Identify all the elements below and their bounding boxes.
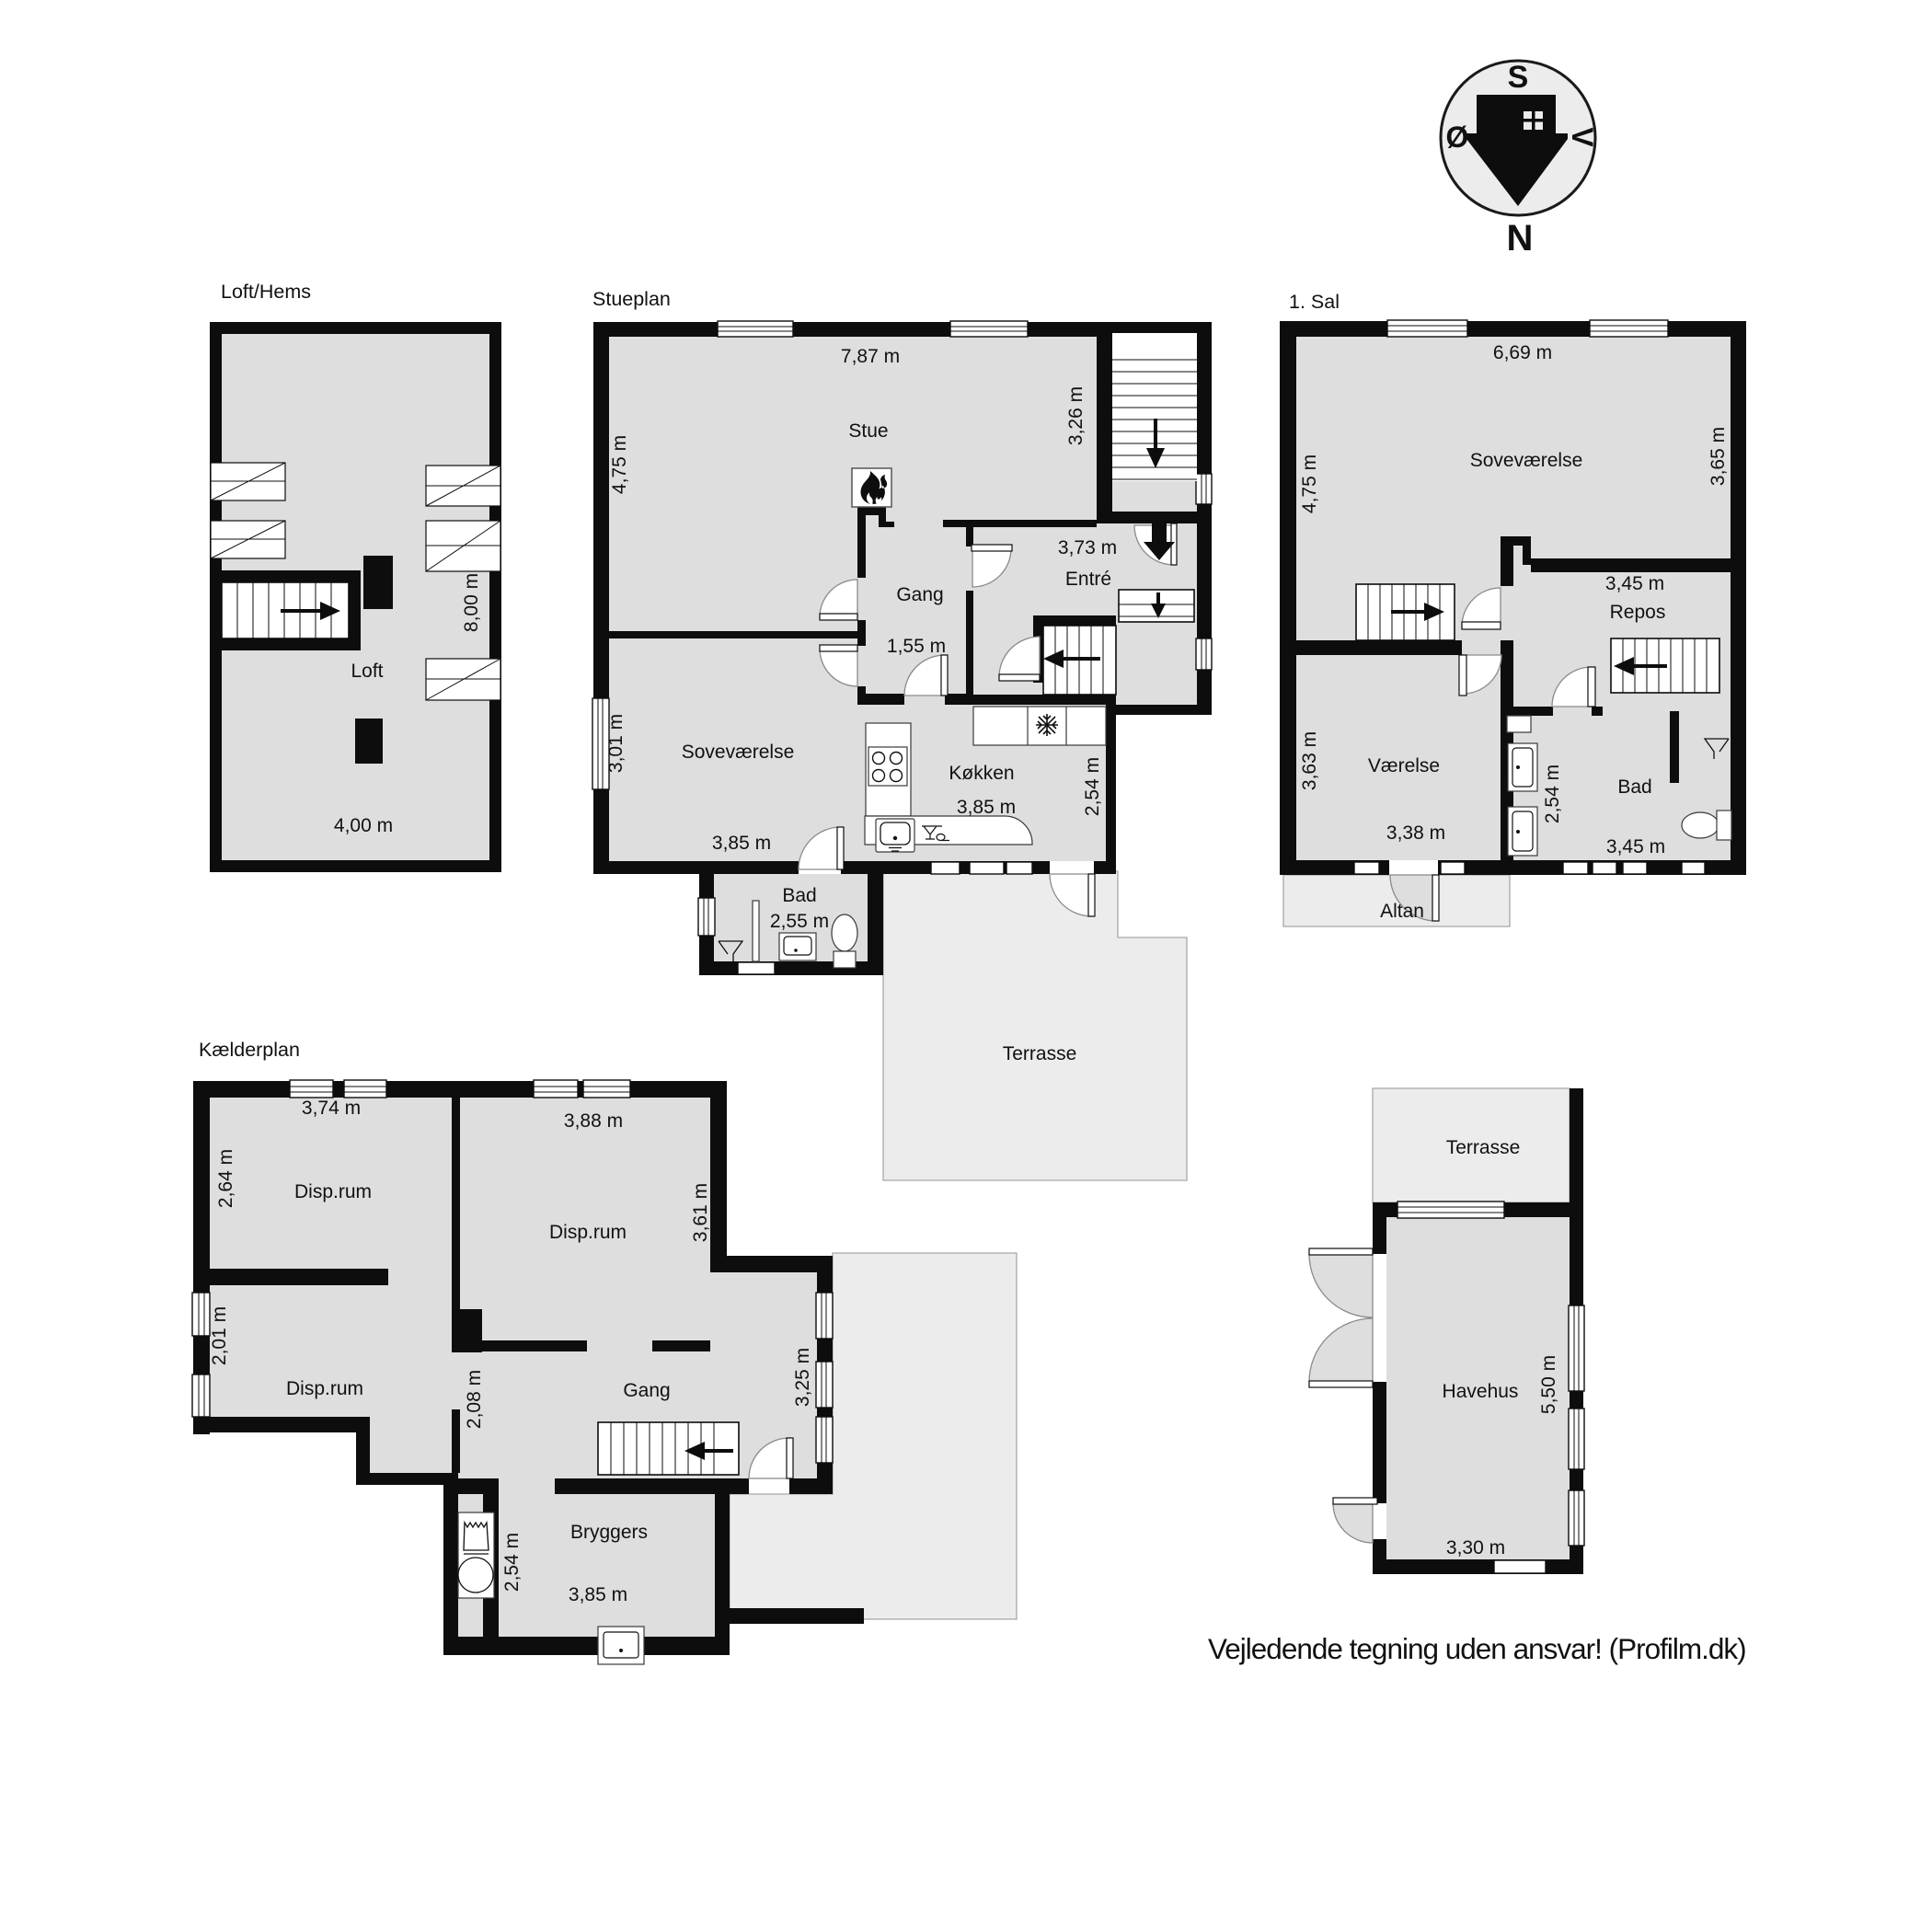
svg-text:N: N	[1507, 218, 1534, 259]
svg-text:Gang: Gang	[896, 584, 943, 605]
svg-text:Altan: Altan	[1380, 901, 1424, 922]
svg-text:Loft: Loft	[351, 661, 383, 682]
svg-text:Ø: Ø	[1446, 121, 1469, 154]
svg-text:3,38 m: 3,38 m	[1386, 822, 1445, 844]
svg-text:Loft/Hems: Loft/Hems	[221, 281, 311, 303]
svg-text:4,75 m: 4,75 m	[1299, 454, 1320, 513]
svg-text:1,55 m: 1,55 m	[887, 636, 946, 657]
svg-text:Bad: Bad	[782, 885, 816, 906]
svg-text:3,30 m: 3,30 m	[1446, 1537, 1505, 1558]
svg-text:4,00 m: 4,00 m	[334, 815, 393, 836]
svg-text:Kælderplan: Kælderplan	[199, 1039, 300, 1061]
svg-text:2,01 m: 2,01 m	[209, 1306, 230, 1365]
svg-text:1. Sal: 1. Sal	[1289, 291, 1340, 313]
svg-text:5,50 m: 5,50 m	[1538, 1355, 1559, 1414]
svg-text:Gang: Gang	[623, 1380, 670, 1401]
svg-text:Bad: Bad	[1617, 776, 1651, 798]
svg-text:8,00 m: 8,00 m	[461, 573, 482, 632]
svg-text:2,54 m: 2,54 m	[1082, 757, 1103, 816]
svg-text:2,64 m: 2,64 m	[215, 1149, 236, 1208]
svg-text:Havehus: Havehus	[1443, 1381, 1519, 1402]
svg-text:Bryggers: Bryggers	[570, 1522, 648, 1543]
svg-text:S: S	[1508, 60, 1529, 95]
svg-text:3,85 m: 3,85 m	[957, 797, 1016, 818]
svg-text:Køkken: Køkken	[949, 763, 1014, 784]
svg-text:2,55 m: 2,55 m	[770, 911, 829, 932]
svg-text:3,01 m: 3,01 m	[605, 714, 627, 773]
svg-text:3,85 m: 3,85 m	[569, 1584, 627, 1605]
svg-text:Repos: Repos	[1610, 602, 1666, 623]
svg-text:Disp.rum: Disp.rum	[549, 1222, 627, 1243]
svg-text:3,26 m: 3,26 m	[1065, 386, 1087, 445]
svg-text:Entré: Entré	[1065, 569, 1111, 590]
svg-text:6,69 m: 6,69 m	[1493, 342, 1552, 363]
svg-text:Stue: Stue	[848, 420, 888, 442]
svg-text:7,87 m: 7,87 m	[841, 346, 900, 367]
svg-text:Vejledende tegning uden ansvar: Vejledende tegning uden ansvar! (Profilm…	[1208, 1632, 1746, 1665]
svg-text:2,08 m: 2,08 m	[464, 1370, 485, 1429]
svg-text:Terrasse: Terrasse	[1003, 1043, 1077, 1064]
svg-text:3,65 m: 3,65 m	[1708, 427, 1729, 486]
svg-text:Disp.rum: Disp.rum	[286, 1378, 363, 1399]
svg-text:2,54 m: 2,54 m	[501, 1533, 523, 1592]
svg-text:V: V	[1566, 127, 1599, 147]
svg-text:3,74 m: 3,74 m	[302, 1098, 361, 1119]
svg-text:3,88 m: 3,88 m	[564, 1110, 623, 1132]
svg-text:2,54 m: 2,54 m	[1542, 765, 1563, 823]
svg-text:4,75 m: 4,75 m	[609, 435, 630, 494]
svg-text:3,45 m: 3,45 m	[1606, 836, 1665, 857]
svg-text:3,61 m: 3,61 m	[690, 1183, 711, 1242]
svg-text:Soveværelse: Soveværelse	[682, 742, 795, 763]
svg-text:Soveværelse: Soveværelse	[1470, 450, 1583, 471]
svg-text:Stueplan: Stueplan	[592, 288, 671, 310]
svg-text:Disp.rum: Disp.rum	[294, 1181, 372, 1202]
svg-text:3,63 m: 3,63 m	[1299, 731, 1320, 790]
svg-text:Værelse: Værelse	[1368, 755, 1440, 776]
svg-text:3,45 m: 3,45 m	[1605, 573, 1664, 594]
svg-text:3,85 m: 3,85 m	[712, 833, 771, 854]
svg-text:3,73 m: 3,73 m	[1058, 537, 1117, 558]
svg-text:Terrasse: Terrasse	[1446, 1137, 1521, 1158]
svg-text:3,25 m: 3,25 m	[792, 1348, 813, 1407]
